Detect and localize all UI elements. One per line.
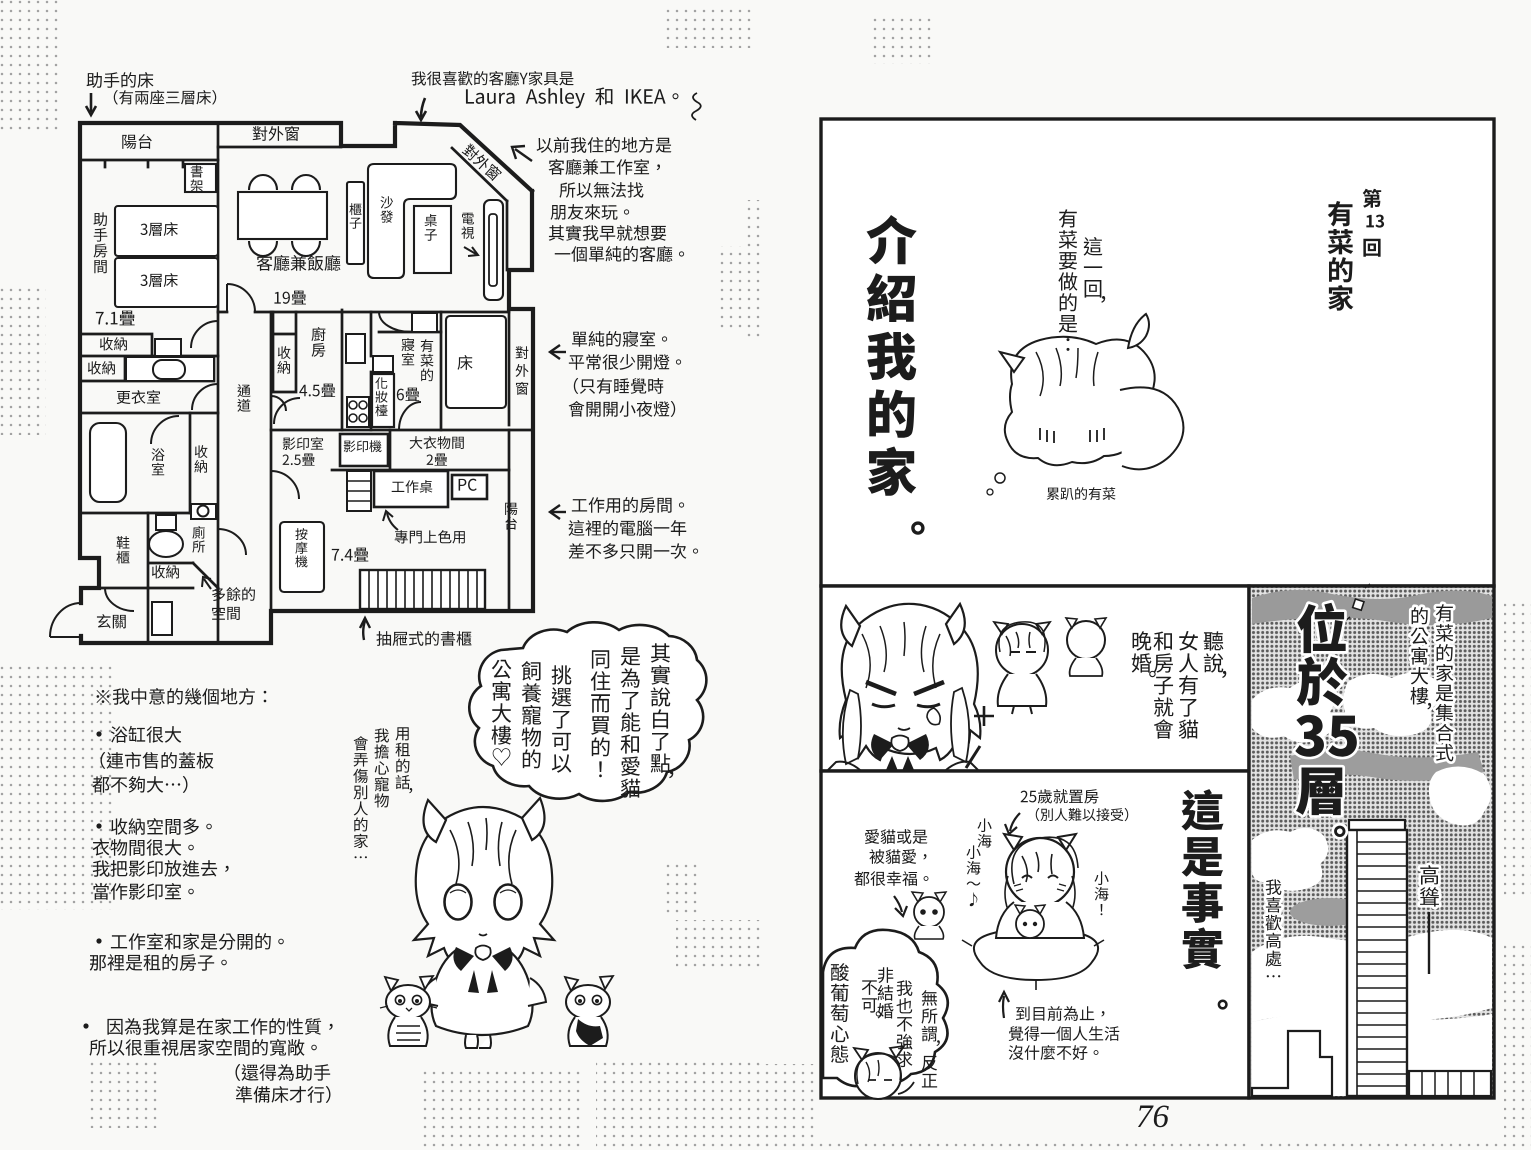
svg-text:76: 76: [1136, 1099, 1170, 1135]
